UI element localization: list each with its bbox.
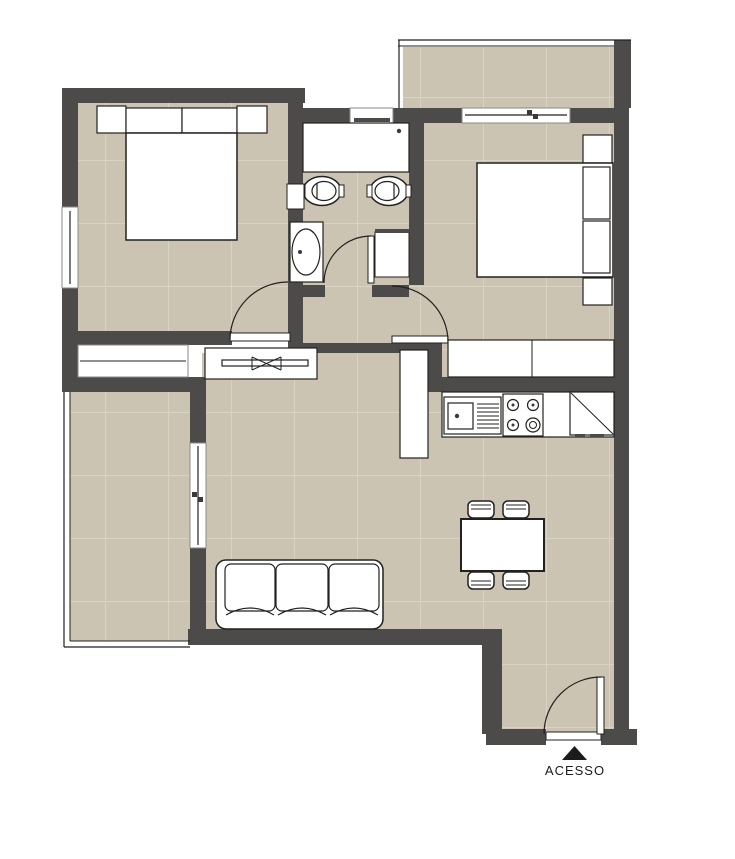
toilet-bowl [303, 177, 341, 206]
stove-burner-1-dot [512, 404, 515, 407]
door-bedroom2-leaf [392, 336, 448, 343]
floor-plan: ACESSO [0, 0, 735, 859]
door-bathroom-leaf [368, 236, 374, 283]
wall-bedroom2-top-left [424, 108, 462, 123]
toilet-hinge-right [339, 185, 344, 197]
door-entry-threshold [546, 732, 601, 740]
bed1-pillow-left [126, 108, 182, 133]
kitchen-drainboard [477, 404, 499, 428]
wall-bedroom2-bottom [442, 377, 614, 392]
kitchen-sink-basin [448, 403, 473, 429]
bed1-pillow-right [182, 108, 237, 133]
bed2-nightstand-top [583, 135, 612, 163]
wall-bathroom-bottom-left [303, 285, 325, 297]
wall-balcony-left-right-upper [190, 392, 206, 443]
wall-living-bottom [188, 629, 502, 645]
stove-burner-2-dot [532, 404, 535, 407]
wall-right [614, 108, 629, 734]
sofa-cushion-1 [225, 564, 275, 611]
wall-left-upper [62, 103, 78, 207]
bed2-pillow-bottom [583, 221, 610, 273]
bed1-nightstand-left [97, 106, 126, 133]
bed1-mattress [126, 133, 237, 240]
balcony-top-floor [403, 47, 614, 108]
fridge-mark-1 [575, 434, 585, 437]
wall-bedroom1-bottom [62, 331, 232, 345]
door-entry-leaf [597, 677, 604, 734]
wall-balcony-left-right-lower [190, 548, 206, 629]
floor-plan-canvas [0, 0, 735, 859]
stove [503, 394, 543, 436]
window-balcony-left-handle [192, 492, 197, 497]
wall-entry-left [482, 645, 502, 734]
bathtub-drain-dot [397, 129, 401, 133]
sink-basin [292, 229, 320, 275]
wall-kitchen-left [428, 343, 442, 392]
sofa-cushion-3 [329, 564, 379, 611]
dining-table [461, 519, 544, 571]
bathtub-counter [303, 123, 409, 172]
window-balcony-left-handle2 [198, 497, 203, 502]
kitchen-tall-cabinet [400, 350, 428, 458]
wall-bedroom2-top-right [570, 108, 615, 123]
bidet-bowl [370, 177, 408, 206]
wall-bathroom-top-left [303, 108, 350, 123]
kitchen-sink-dot [455, 414, 459, 418]
window-bedroom2-handle [527, 110, 532, 115]
bidet-hinge-left [367, 185, 372, 197]
shower-box-top [375, 229, 409, 233]
wall-entry-bottom-right [601, 729, 637, 745]
fridge-mark-2 [590, 434, 604, 437]
wall-balcony-top-right-block [614, 40, 631, 108]
wall-entry-bottom-left [486, 729, 546, 745]
bidet-hinge-right [406, 185, 411, 197]
shower-box [375, 232, 409, 277]
bed1-nightstand-right [237, 106, 267, 133]
stove-burner-3-dot [512, 424, 515, 427]
access-arrow-icon [562, 746, 587, 760]
access-label: ACESSO [535, 763, 615, 778]
wardrobe [448, 340, 614, 377]
window-bathroom-pane [354, 118, 390, 122]
bed2-nightstand-bottom [583, 278, 612, 305]
sink-faucet-dot [298, 250, 302, 254]
bathroom-cabinet [287, 184, 304, 209]
balcony-left-floor [70, 392, 190, 641]
door-bedroom1-threshold [230, 333, 290, 341]
wall-balcony-left-top [62, 377, 206, 392]
wall-bedroom1-top [62, 88, 305, 103]
window-bedroom2-handle2 [533, 114, 538, 119]
sofa-cushion-2 [276, 564, 328, 611]
bed2-pillow-top [583, 167, 610, 219]
